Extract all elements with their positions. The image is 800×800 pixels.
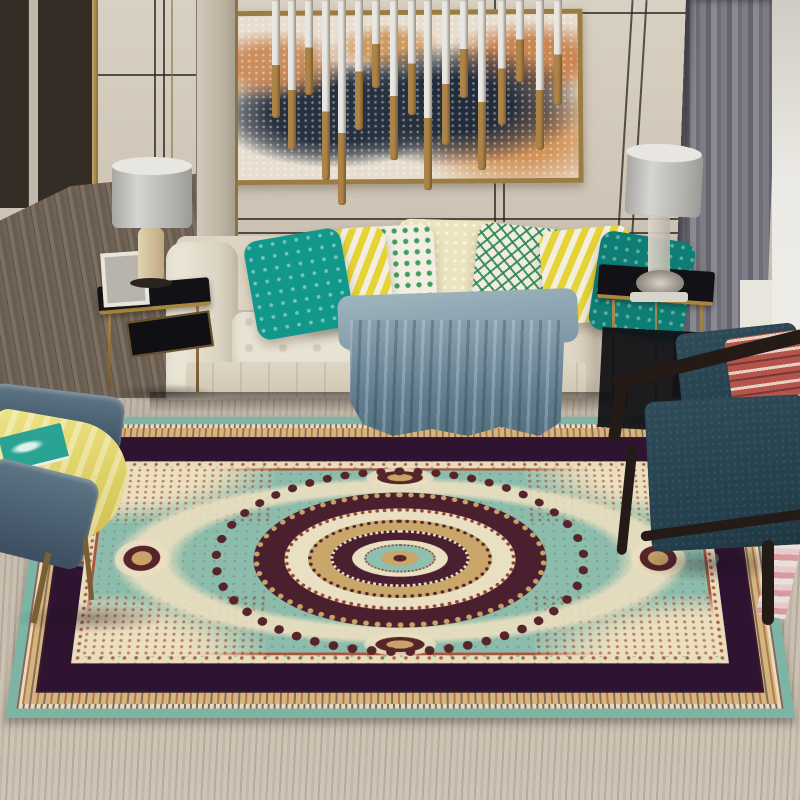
- pendant-rod: [322, 0, 330, 180]
- armchair-rear-leg: [762, 540, 774, 625]
- pendant-rod: [478, 0, 486, 170]
- pendant-rod: [442, 0, 450, 145]
- pendant-rod: [355, 0, 363, 130]
- pendant-rod: [460, 0, 468, 98]
- throw-blanket-hanging: [350, 320, 565, 436]
- pendant-rod: [408, 0, 416, 115]
- pendant-rod: [305, 0, 313, 95]
- living-room-photo: [0, 0, 800, 800]
- pendant-rod: [516, 0, 524, 82]
- pendant-rod: [338, 0, 346, 205]
- left-lamp-base: [138, 227, 164, 283]
- pendant-rod: [288, 0, 296, 150]
- pendant-rod: [554, 0, 562, 105]
- pendant-rod: [372, 0, 380, 88]
- pendant-rod: [390, 0, 398, 160]
- bench-shadow: [0, 596, 200, 640]
- right-lamp-base-pad: [630, 292, 688, 302]
- pendant-rod: [424, 0, 432, 190]
- left-lamp-shade-top: [112, 157, 192, 175]
- pendant-rod: [498, 0, 506, 125]
- rug-medallion-center-dot: [393, 555, 406, 562]
- pendant-rod: [536, 0, 544, 150]
- pendant-rod: [272, 0, 280, 118]
- left-lamp-foot: [130, 278, 172, 288]
